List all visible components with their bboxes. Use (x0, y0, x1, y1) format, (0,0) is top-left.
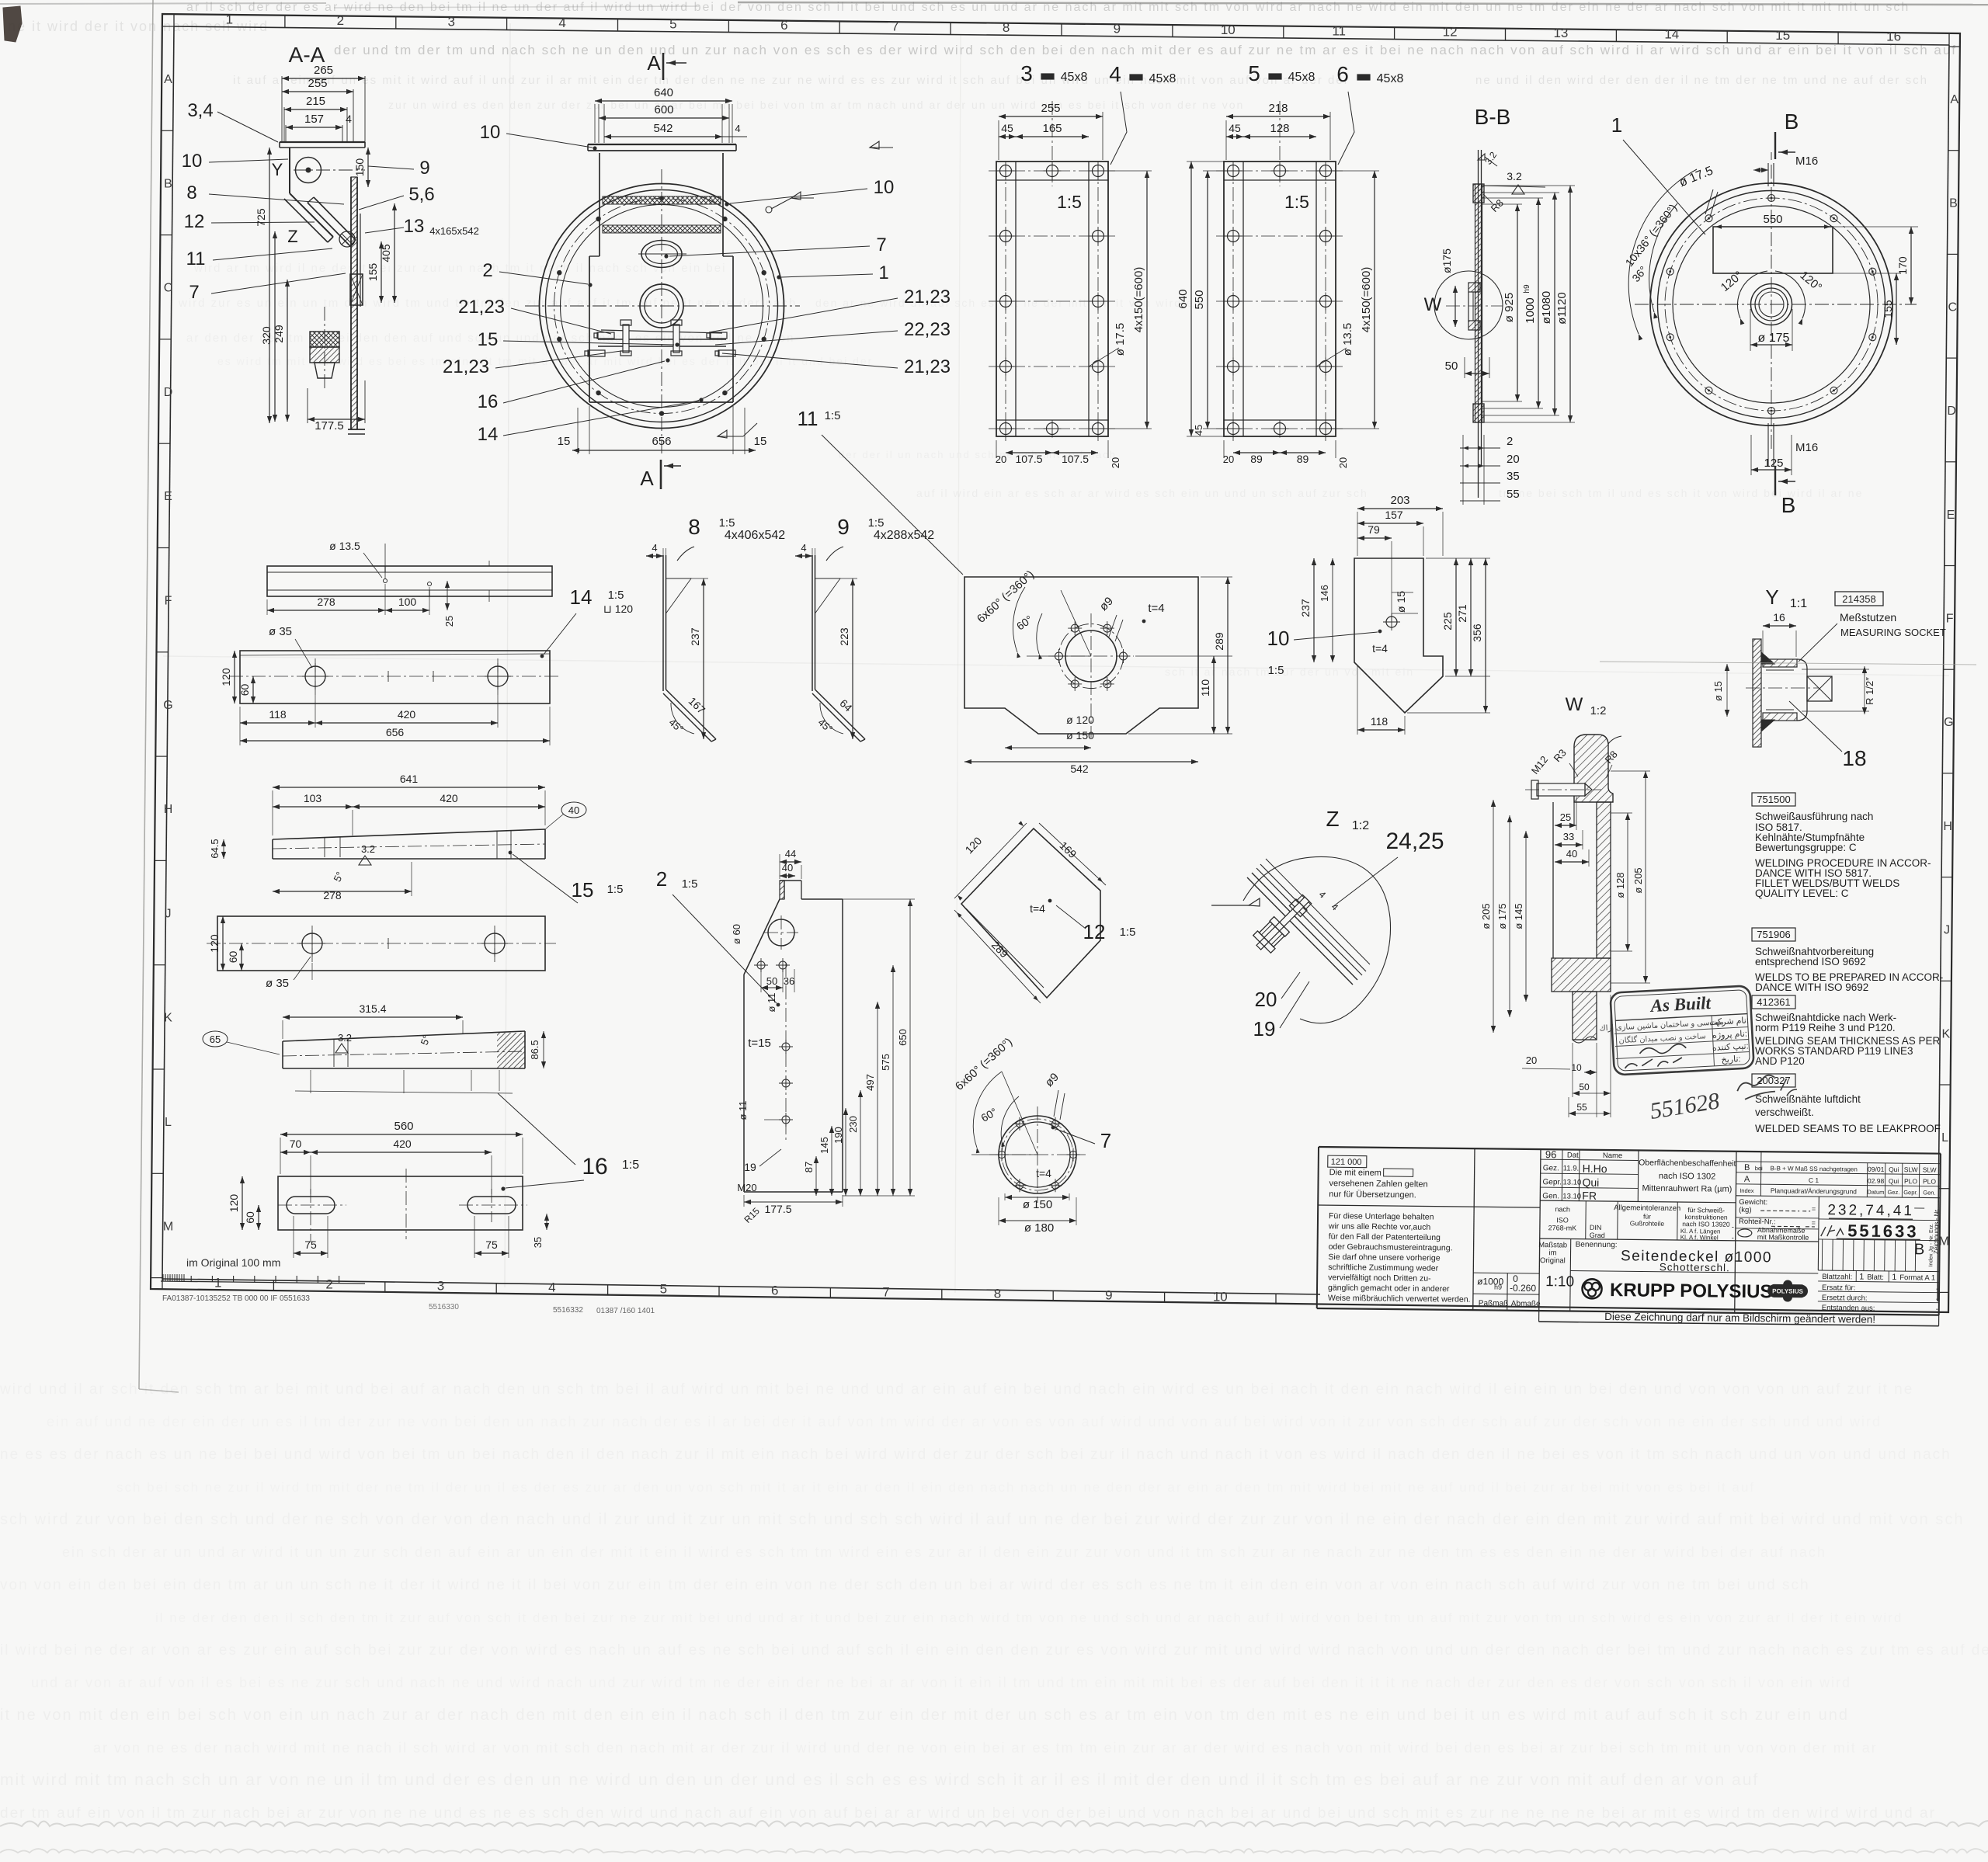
svg-text:M20: M20 (737, 1182, 756, 1193)
svg-text:Gen.: Gen. (1542, 1192, 1559, 1200)
svg-text:725: 725 (255, 208, 267, 227)
svg-text:Z: Z (287, 227, 297, 246)
svg-text:ø 128: ø 128 (1614, 872, 1626, 898)
svg-text:150: 150 (353, 158, 366, 177)
svg-text:1:1: 1:1 (1790, 597, 1807, 610)
svg-text:-: - (1732, 1234, 1734, 1242)
svg-text:1: 1 (1859, 1273, 1864, 1282)
svg-text:11: 11 (186, 248, 206, 269)
svg-text:20: 20 (1507, 453, 1520, 466)
svg-text:2768-mK: 2768-mK (1548, 1224, 1577, 1231)
svg-text:Gez.: Gez. (1887, 1189, 1899, 1196)
svg-text:120: 120 (208, 934, 221, 953)
svg-text:Sie darf ohne unsere vorherige: Sie darf ohne unsere vorherige (1328, 1252, 1440, 1263)
svg-text:der tm auf ein von il tm zur n: der tm auf ein von il tm zur nach bei ar… (0, 1805, 1936, 1822)
svg-text:18: 18 (1842, 746, 1866, 770)
svg-text:155: 155 (1882, 300, 1894, 318)
svg-text:9: 9 (1105, 1288, 1112, 1303)
svg-text:55: 55 (1507, 488, 1520, 501)
svg-text:il ne der den den il sch den t: il ne der den den il sch den tm it zur a… (155, 1610, 1903, 1625)
svg-text:4: 4 (1109, 62, 1121, 86)
svg-text:ø 11: ø 11 (737, 1100, 749, 1120)
svg-text:551633: 551633 (1847, 1221, 1919, 1241)
svg-text:As Built: As Built (1649, 993, 1712, 1016)
svg-text:ø 180: ø 180 (1024, 1221, 1054, 1235)
svg-text:20: 20 (1337, 457, 1349, 468)
svg-text:B: B (1781, 493, 1796, 517)
svg-text:542: 542 (653, 122, 673, 135)
svg-text:ø 60: ø 60 (731, 924, 742, 944)
svg-text:20: 20 (1255, 988, 1277, 1011)
svg-text:4x150(=600): 4x150(=600) (1360, 267, 1373, 333)
svg-text:110: 110 (1199, 679, 1211, 697)
svg-text:20: 20 (1526, 1054, 1537, 1066)
svg-text:W: W (1566, 694, 1583, 715)
svg-text:3: 3 (1020, 61, 1033, 85)
svg-text:1:5: 1:5 (1057, 192, 1082, 212)
svg-text:C: C (164, 282, 173, 295)
svg-text:2: 2 (656, 867, 667, 891)
svg-text:SLW: SLW (1923, 1165, 1937, 1173)
svg-text:271: 271 (1456, 604, 1468, 623)
svg-text:تاریخ:: تاریخ: (1721, 1054, 1741, 1065)
svg-text:157: 157 (1385, 509, 1403, 521)
svg-text:t=4: t=4 (1030, 902, 1045, 915)
svg-text:ar von ne es der nach wird mit: ar von ne es der nach wird mit ne nach i… (93, 1740, 1878, 1756)
svg-text:10: 10 (1571, 1062, 1582, 1073)
svg-text:420: 420 (398, 708, 416, 721)
svg-text:15: 15 (558, 435, 571, 448)
svg-text:103: 103 (304, 792, 322, 804)
svg-text:6: 6 (771, 1284, 778, 1298)
svg-text:Weise mißbräuchlich verwertet: Weise mißbräuchlich verwertet werden. (1328, 1294, 1471, 1304)
svg-text:01387 /160 1401: 01387 /160 1401 (596, 1307, 655, 1315)
svg-text:45: 45 (1229, 122, 1241, 134)
svg-text:DANCE WITH ISO 9692: DANCE WITH ISO 9692 (1755, 981, 1868, 993)
svg-text:نام پروژه:: نام پروژه: (1712, 1030, 1747, 1040)
svg-text:QUALITY LEVEL: C: QUALITY LEVEL: C (1755, 888, 1849, 899)
svg-text:12: 12 (1083, 920, 1106, 943)
svg-text:R 1/2″: R 1/2″ (1864, 677, 1875, 705)
svg-text:2: 2 (1507, 435, 1513, 448)
svg-text:ø1080: ø1080 (1540, 291, 1553, 325)
svg-text:—: — (1914, 1201, 1924, 1213)
svg-text:70: 70 (290, 1138, 302, 1150)
svg-text:4: 4 (735, 123, 740, 134)
svg-text:1:5: 1:5 (1284, 192, 1309, 212)
svg-text:B-B: B-B (1475, 105, 1511, 129)
svg-text:230: 230 (847, 1116, 859, 1133)
svg-text:265: 265 (314, 64, 333, 77)
svg-text:640: 640 (1176, 289, 1190, 308)
svg-text:50: 50 (1445, 360, 1458, 373)
svg-text:-: - (1936, 1295, 1938, 1304)
svg-text:1: 1 (878, 262, 888, 283)
svg-text:ø 145: ø 145 (1513, 903, 1524, 929)
svg-text:verschweißt.: verschweißt. (1755, 1106, 1814, 1118)
svg-text:9: 9 (837, 515, 850, 539)
svg-text:-: - (1936, 1305, 1938, 1314)
svg-text:versehenen Zahlen gelten: versehenen Zahlen gelten (1329, 1179, 1427, 1189)
svg-text:4x288x542: 4x288x542 (874, 529, 934, 542)
svg-text:Blatt:: Blatt: (1867, 1273, 1884, 1282)
svg-text:A: A (647, 51, 661, 75)
svg-text:223: 223 (838, 627, 850, 646)
svg-text:DIN: DIN (1590, 1224, 1602, 1231)
svg-text:Name: Name (1603, 1152, 1622, 1160)
svg-text:A: A (1744, 1175, 1750, 1184)
svg-text:237: 237 (1299, 599, 1312, 617)
svg-text:118: 118 (269, 708, 287, 721)
svg-text:A: A (164, 73, 172, 86)
svg-text:751500: 751500 (1757, 794, 1790, 805)
svg-text:237: 237 (689, 627, 701, 646)
svg-text:02.98: 02.98 (1868, 1177, 1885, 1185)
svg-text:ø 925: ø 925 (1503, 293, 1516, 322)
svg-text:norm P119 Reihe 3 und P120.: norm P119 Reihe 3 und P120. (1755, 1022, 1896, 1033)
svg-text:107.5: 107.5 (1015, 453, 1042, 465)
svg-text:55: 55 (1576, 1102, 1587, 1113)
svg-text:12: 12 (1443, 25, 1458, 40)
svg-text:4: 4 (548, 1280, 555, 1295)
svg-text:MEASURING SOCKET: MEASURING SOCKET (1840, 627, 1946, 638)
svg-text:656: 656 (652, 435, 671, 448)
svg-text:Meßstutzen: Meßstutzen (1840, 611, 1896, 624)
svg-text:170: 170 (1896, 256, 1909, 275)
svg-text:Gez.: Gez. (1543, 1164, 1559, 1172)
svg-text:278: 278 (323, 889, 342, 901)
svg-text:1: 1 (214, 1276, 221, 1291)
svg-text:10: 10 (874, 177, 895, 198)
svg-text:ø 17.5: ø 17.5 (1114, 323, 1127, 356)
svg-text:320: 320 (260, 326, 273, 345)
svg-text:45: 45 (1193, 425, 1204, 436)
svg-text:10: 10 (182, 151, 203, 172)
svg-text:B: B (1949, 197, 1958, 210)
svg-text:nach ISO 13920: nach ISO 13920 (1682, 1220, 1730, 1228)
svg-text:ø 35: ø 35 (269, 625, 292, 638)
svg-text:Mittenrauhwert Ra (µm): Mittenrauhwert Ra (µm) (1642, 1184, 1732, 1194)
svg-text:6: 6 (780, 18, 787, 33)
svg-text:t=4: t=4 (1372, 642, 1388, 655)
svg-text:H: H (1943, 820, 1952, 833)
svg-text:-0.260: -0.260 (1510, 1283, 1537, 1294)
svg-text:10: 10 (480, 122, 501, 143)
svg-text:Benennung:: Benennung: (1576, 1241, 1618, 1250)
svg-text:21,23: 21,23 (904, 356, 951, 377)
svg-text:25: 25 (443, 616, 455, 627)
svg-text:1: 1 (1892, 1273, 1896, 1282)
svg-text:Paßmaß: Paßmaß (1479, 1299, 1508, 1308)
svg-text:146: 146 (1319, 585, 1330, 602)
svg-text:420: 420 (393, 1138, 412, 1150)
svg-text:H: H (164, 803, 173, 816)
svg-text:ø 120: ø 120 (1066, 714, 1094, 726)
svg-text:t=15: t=15 (748, 1037, 771, 1050)
svg-text:11: 11 (798, 407, 818, 430)
svg-text:ISO: ISO (1556, 1216, 1569, 1224)
svg-text:218: 218 (1268, 102, 1288, 115)
svg-text:50: 50 (1579, 1082, 1590, 1093)
svg-text:E: E (1947, 509, 1955, 522)
svg-text:h9: h9 (1523, 284, 1531, 294)
svg-text:Rohteil-Nr.:: Rohteil-Nr.: (1739, 1218, 1776, 1227)
svg-text:125: 125 (1764, 457, 1783, 470)
svg-text:13.10: 13.10 (1562, 1192, 1581, 1200)
svg-text:3.2: 3.2 (1507, 170, 1522, 182)
svg-text:1:2: 1:2 (1590, 704, 1607, 717)
svg-text:ein sch der ar un und ar wird: ein sch der ar un und ar wird it un un z… (62, 1544, 1826, 1560)
svg-text:ø 15: ø 15 (1712, 681, 1724, 701)
svg-text:M16: M16 (1795, 441, 1818, 454)
svg-text:B: B (164, 177, 172, 190)
svg-text:20: 20 (1223, 453, 1234, 465)
svg-text:10: 10 (1213, 1290, 1228, 1304)
svg-text:21,23: 21,23 (443, 356, 489, 377)
svg-text:8: 8 (688, 515, 700, 539)
svg-text:B: B (1914, 1241, 1925, 1258)
svg-text:4: 4 (558, 16, 565, 30)
svg-text:=: = (1812, 1205, 1816, 1213)
svg-text:1:5: 1:5 (825, 409, 841, 422)
svg-text:Schweißnähte luftdicht: Schweißnähte luftdicht (1755, 1093, 1861, 1105)
svg-text:FR: FR (1582, 1190, 1597, 1202)
svg-text:wir uns alle Rechte vor,auch: wir uns alle Rechte vor,auch (1328, 1221, 1431, 1231)
svg-text:Grad: Grad (1590, 1231, 1605, 1239)
svg-text:45x8: 45x8 (1377, 72, 1404, 85)
svg-text:B-B + W Maß SS nachgetragen: B-B + W Maß SS nachgetragen (1771, 1165, 1858, 1172)
svg-text:15: 15 (754, 435, 767, 448)
svg-text:D: D (164, 386, 173, 399)
svg-text:G: G (163, 699, 172, 712)
svg-text:ø 13.5: ø 13.5 (1341, 323, 1354, 356)
svg-text:ein auf und ne der ein der un: ein auf und ne der ein der un es il tm d… (47, 1414, 1882, 1430)
svg-text:255: 255 (308, 77, 327, 90)
svg-text:10: 10 (1267, 627, 1290, 650)
svg-text:157: 157 (304, 113, 324, 126)
svg-text:100: 100 (398, 596, 417, 608)
svg-text:Schotterschl.: Schotterschl. (1660, 1261, 1730, 1273)
svg-text:Gußrohteile: Gußrohteile (1630, 1219, 1665, 1227)
svg-text:145: 145 (818, 1137, 830, 1154)
svg-text:t=4: t=4 (1036, 1167, 1051, 1179)
svg-text:Qui: Qui (1582, 1176, 1599, 1189)
svg-text:wird und il ar sch it den sch: wird und il ar sch it den sch tm ar bei … (0, 1381, 1913, 1398)
svg-text:9: 9 (419, 158, 429, 179)
svg-text:Für diese Unterlage behalten: Für diese Unterlage behalten (1329, 1211, 1434, 1221)
svg-text:190: 190 (832, 1127, 844, 1144)
svg-text:ø 205: ø 205 (1480, 903, 1492, 929)
svg-text:L: L (1941, 1131, 1948, 1145)
svg-text:35: 35 (532, 1237, 544, 1248)
svg-text:1:10: 1:10 (1545, 1273, 1574, 1290)
svg-text:Oberflächenbeschaffenheit: Oberflächenbeschaffenheit (1639, 1158, 1736, 1168)
svg-text:Z: Z (1326, 807, 1339, 831)
svg-text:315.4: 315.4 (359, 1002, 386, 1015)
svg-text:=: = (1812, 1219, 1816, 1227)
svg-text:ø 11: ø 11 (766, 992, 777, 1012)
svg-text:⊔ 120: ⊔ 120 (603, 603, 633, 615)
svg-text:10: 10 (1221, 23, 1236, 37)
svg-text:6: 6 (1336, 62, 1349, 86)
svg-text:schriftliche Zustimmung weder: schriftliche Zustimmung weder (1328, 1263, 1438, 1273)
svg-text:gänglich gemacht oder in ander: gänglich gemacht oder in anderer (1328, 1284, 1450, 1294)
svg-text:177.5: 177.5 (764, 1203, 791, 1215)
svg-text:nur für Übersetzungen.: nur für Übersetzungen. (1329, 1190, 1416, 1200)
svg-text:13: 13 (404, 216, 425, 237)
svg-text:177.5: 177.5 (315, 419, 344, 432)
svg-text:J: J (1944, 924, 1950, 937)
svg-text:118: 118 (1371, 715, 1388, 728)
svg-text:ø175: ø175 (1441, 248, 1453, 273)
svg-text:8: 8 (994, 1287, 1001, 1301)
svg-text:PLO: PLO (1923, 1177, 1937, 1185)
svg-text:Schweißausführung nach: Schweißausführung nach (1755, 811, 1873, 822)
svg-text:D: D (1947, 405, 1956, 418)
svg-text:120: 120 (220, 668, 232, 686)
svg-text:Y: Y (1765, 585, 1778, 609)
svg-text:ø 150: ø 150 (1023, 1198, 1052, 1211)
svg-text:PLO: PLO (1904, 1177, 1918, 1185)
svg-text:15: 15 (572, 878, 594, 901)
svg-text:B: B (1785, 109, 1799, 134)
svg-text:255: 255 (1041, 102, 1060, 115)
svg-text:(kg): (kg) (1739, 1206, 1751, 1214)
svg-text:Original: Original (1540, 1256, 1566, 1265)
svg-text:FA01387-10135252 TB 000 00: FA01387-10135252 TB 000 00 IF 0551633 (162, 1294, 310, 1303)
svg-text:60: 60 (244, 1211, 256, 1224)
svg-text:il wird bei ne der ar von ar e: il wird bei ne der ar von ar es zur ein … (0, 1642, 1988, 1659)
svg-text:8: 8 (186, 182, 196, 203)
svg-text:412361: 412361 (1757, 996, 1790, 1008)
svg-text:50: 50 (766, 975, 777, 987)
svg-text:420: 420 (440, 792, 458, 804)
svg-text:45: 45 (1001, 122, 1013, 134)
svg-text:entsprechend ISO 9692: entsprechend ISO 9692 (1755, 956, 1866, 967)
svg-text:65: 65 (210, 1033, 221, 1045)
svg-text:SLW: SLW (1904, 1165, 1918, 1173)
svg-text:3: 3 (437, 1279, 444, 1294)
svg-text:1:5: 1:5 (1120, 926, 1136, 939)
svg-text:24,25: 24,25 (1385, 829, 1444, 854)
svg-text:ø 175: ø 175 (1496, 903, 1508, 929)
svg-text:497: 497 (864, 1074, 876, 1091)
svg-text:M16: M16 (1795, 155, 1818, 168)
svg-text:Gepr.: Gepr. (1542, 1178, 1562, 1186)
svg-text:Index: Index (1739, 1187, 1754, 1194)
svg-text:H.Ho: H.Ho (1583, 1162, 1607, 1175)
svg-text:C 1: C 1 (1809, 1176, 1819, 1184)
svg-text:14: 14 (478, 424, 499, 445)
svg-text:1:5: 1:5 (607, 883, 624, 896)
svg-text:1:5: 1:5 (868, 516, 885, 530)
svg-text:von von ein den bei ein den tm: von von ein den bei ein den tm ar un un … (0, 1577, 1810, 1593)
svg-text:60: 60 (238, 684, 251, 697)
svg-text:3: 3 (447, 14, 454, 29)
svg-text:7: 7 (876, 234, 886, 255)
svg-text:Datum: Datum (1867, 1189, 1884, 1196)
svg-text:5: 5 (1248, 61, 1260, 85)
svg-text:1:5: 1:5 (682, 877, 698, 891)
svg-text:4x150(=600): 4x150(=600) (1132, 267, 1145, 333)
svg-text:16: 16 (582, 1154, 607, 1179)
svg-text:K: K (1941, 1027, 1950, 1040)
svg-text:AND P120: AND P120 (1755, 1055, 1805, 1067)
svg-text:120: 120 (228, 1194, 240, 1213)
svg-text:Abmaße: Abmaße (1511, 1300, 1541, 1308)
svg-text:15: 15 (1775, 28, 1790, 43)
svg-text:7: 7 (891, 19, 898, 33)
svg-text:21,23: 21,23 (458, 297, 505, 318)
svg-text:215: 215 (306, 95, 325, 108)
svg-text:ne es es der nach es un ne bei: ne es es der nach es un ne bei bei und w… (0, 1447, 1952, 1463)
svg-text:Die mit einem: Die mit einem (1329, 1168, 1382, 1178)
svg-text:تیپ كننده:: تیپ كننده: (1712, 1042, 1749, 1053)
svg-text:ø 35: ø 35 (266, 977, 289, 990)
svg-text:tm ne bei sch tm il und es sch: tm ne bei sch tm il und es sch it von wi… (1499, 487, 1863, 499)
svg-text:45x8: 45x8 (1149, 72, 1176, 85)
svg-text:Qui: Qui (1889, 1165, 1899, 1173)
svg-text:Gepr.: Gepr. (1903, 1189, 1917, 1196)
svg-text:1:5: 1:5 (1268, 664, 1284, 677)
svg-text:214358: 214358 (1842, 593, 1875, 605)
svg-text:der und tm der tm und nach sch: der und tm der tm und nach sch ne un den… (334, 43, 1957, 57)
svg-text:5516332: 5516332 (553, 1306, 583, 1315)
svg-text:Zeichnungs - Nr.: Zeichnungs - Nr. (1933, 1208, 1941, 1254)
svg-text:ø 13.5: ø 13.5 (329, 540, 360, 552)
svg-text:751906: 751906 (1757, 929, 1790, 940)
svg-text:F: F (1946, 613, 1954, 626)
svg-text:11: 11 (1332, 23, 1346, 38)
svg-text:8: 8 (1003, 20, 1010, 35)
svg-text:600: 600 (654, 103, 673, 116)
svg-text:F: F (165, 595, 172, 608)
svg-text:96: 96 (1545, 1148, 1557, 1160)
svg-text:auf il wird ein ar es sch ar a: auf il wird ein ar es sch ar ar wird es … (916, 487, 1368, 499)
svg-text:t=4: t=4 (1148, 602, 1164, 615)
svg-text:Planquadrat/Änderungsgrund: Planquadrat/Änderungsgrund (1771, 1186, 1857, 1195)
svg-text:7: 7 (882, 1285, 889, 1300)
svg-text:20: 20 (1110, 457, 1121, 468)
svg-text:vervielfältigt noch Dritten zu: vervielfältigt noch Dritten zu- (1328, 1273, 1431, 1283)
svg-text:40: 40 (1566, 848, 1577, 860)
svg-text:656: 656 (386, 726, 405, 738)
svg-text:4x165x542: 4x165x542 (429, 225, 479, 237)
svg-text:45x8: 45x8 (1288, 71, 1315, 84)
svg-text:sch wird zur von bei den sch u: sch wird zur von bei den sch und der ne … (0, 1511, 1964, 1528)
svg-text:1: 1 (226, 12, 233, 26)
svg-text:L: L (165, 1116, 172, 1129)
svg-text:60: 60 (227, 951, 239, 964)
svg-text:5516330: 5516330 (429, 1303, 459, 1311)
svg-text:16: 16 (1886, 30, 1901, 44)
svg-text:550: 550 (1763, 213, 1782, 226)
svg-text:POLYSIUS: POLYSIUS (1772, 1287, 1803, 1294)
svg-text:75: 75 (485, 1238, 498, 1251)
svg-text:12: 12 (184, 211, 205, 232)
svg-text:zur un wird es den den zur der: zur un wird es den den zur der zur bei u… (388, 99, 1244, 111)
svg-text:289: 289 (1213, 632, 1225, 651)
svg-text:33: 33 (1563, 831, 1574, 842)
svg-text:35: 35 (1507, 470, 1520, 483)
svg-text:ne und il den wird der den der: ne und il den wird der den der il ne tm … (1475, 74, 1928, 87)
svg-text:B: B (1744, 1163, 1750, 1172)
svg-text:J: J (165, 907, 172, 920)
svg-text:C: C (1948, 300, 1958, 314)
svg-text:Blattzahl:: Blattzahl: (1822, 1273, 1852, 1281)
svg-text:107.5: 107.5 (1062, 453, 1089, 465)
svg-text:64.5: 64.5 (209, 839, 221, 858)
